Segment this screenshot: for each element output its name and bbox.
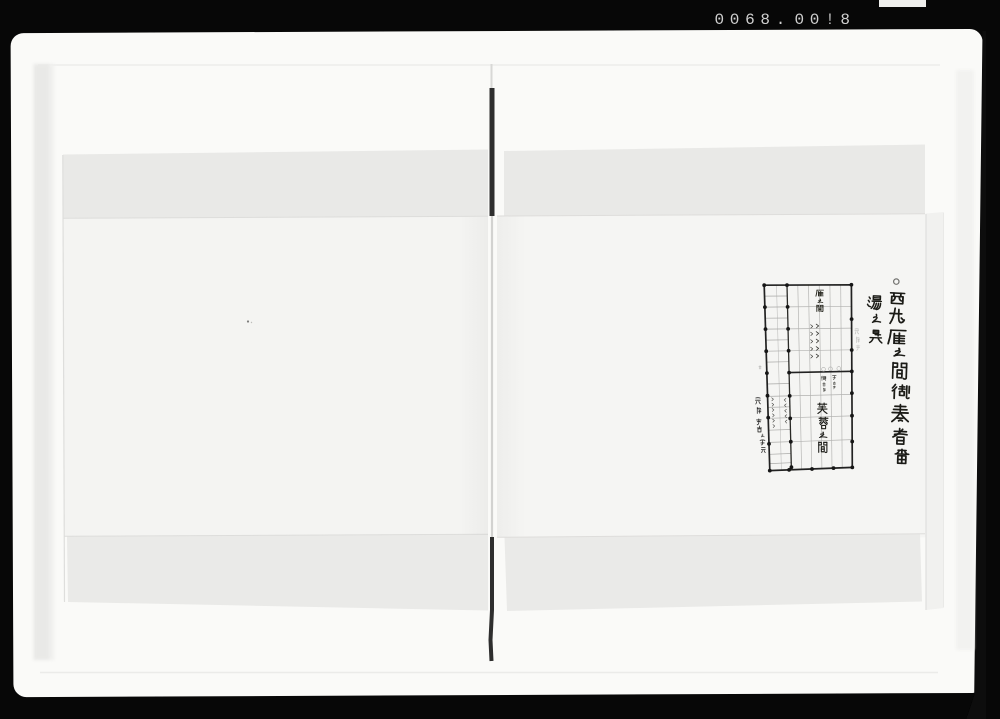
svg-text:0068.: 0068. (715, 11, 792, 29)
svg-text:00!8: 00!8 (795, 11, 856, 29)
